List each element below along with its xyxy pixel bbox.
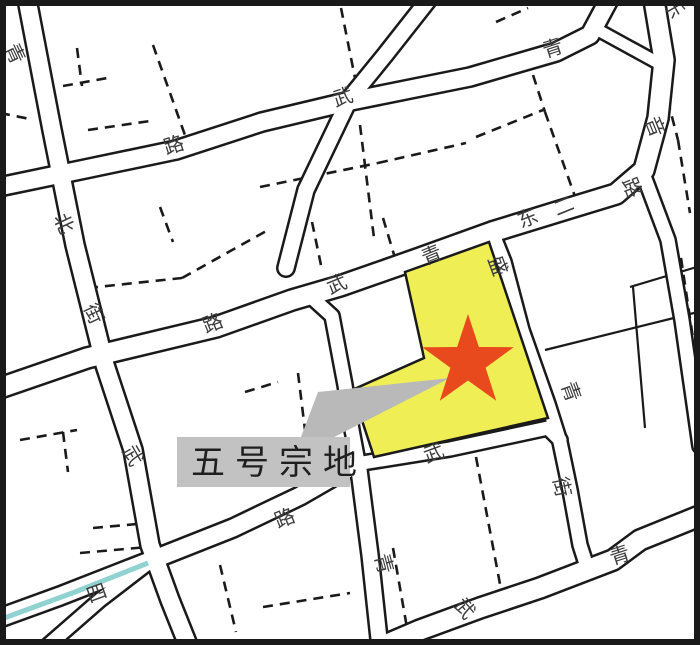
map-canvas: 青路武青乐音路北街路武青东二盛青街武路青四青武武 五号宗地	[0, 0, 700, 645]
street-label: 青	[556, 378, 584, 405]
parcel-title-label: 五号宗地	[191, 444, 367, 482]
road-mid-steep-street-north	[286, 0, 433, 268]
parcel-location-map: 青路武青乐音路北街路武青东二盛青街武路青四青武武 五号宗地	[0, 0, 700, 645]
